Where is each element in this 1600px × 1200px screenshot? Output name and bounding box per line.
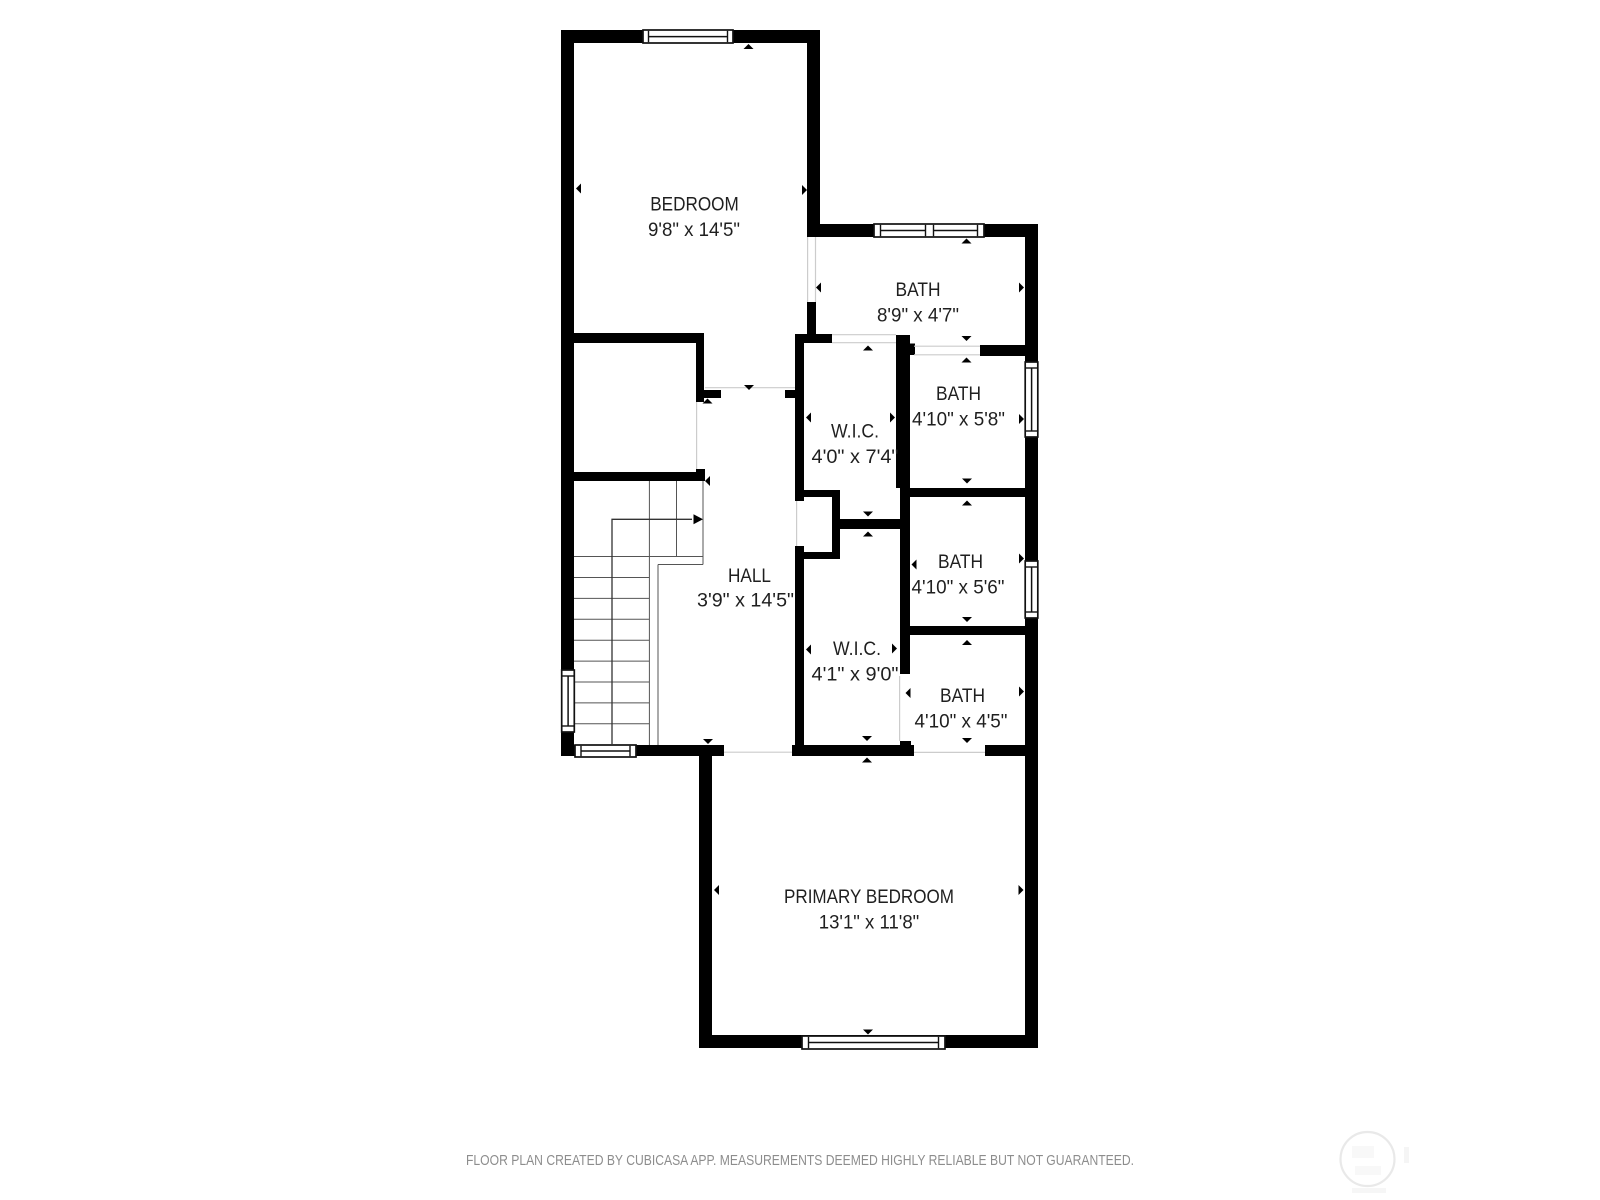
svg-text:4'10" x 5'6": 4'10" x 5'6" xyxy=(912,578,1005,599)
svg-text:3'9" x 14'5": 3'9" x 14'5" xyxy=(697,591,794,612)
svg-text:8'9" x 4'7": 8'9" x 4'7" xyxy=(877,306,959,327)
svg-text:PRIMARY BEDROOM: PRIMARY BEDROOM xyxy=(784,887,954,908)
svg-text:HALL: HALL xyxy=(728,566,771,587)
svg-text:9'8" x 14'5": 9'8" x 14'5" xyxy=(648,220,740,241)
svg-text:BATH: BATH xyxy=(938,552,983,573)
svg-text:BATH: BATH xyxy=(940,686,985,707)
svg-text:BATH: BATH xyxy=(896,280,941,301)
svg-text:W.I.C.: W.I.C. xyxy=(833,639,881,660)
svg-text:BEDROOM: BEDROOM xyxy=(650,195,739,216)
svg-text:FLOOR PLAN CREATED BY CUBICASA: FLOOR PLAN CREATED BY CUBICASA APP. MEAS… xyxy=(466,1152,1134,1169)
svg-text:4'10" x 5'8": 4'10" x 5'8" xyxy=(912,410,1005,431)
svg-text:4'1" x 9'0": 4'1" x 9'0" xyxy=(812,665,899,686)
svg-text:W.I.C.: W.I.C. xyxy=(831,422,879,443)
svg-text:4'0" x 7'4": 4'0" x 7'4" xyxy=(812,447,899,468)
svg-text:4'10" x 4'5": 4'10" x 4'5" xyxy=(915,712,1008,733)
svg-text:13'1" x 11'8": 13'1" x 11'8" xyxy=(819,913,920,934)
svg-text:BATH: BATH xyxy=(936,384,981,405)
